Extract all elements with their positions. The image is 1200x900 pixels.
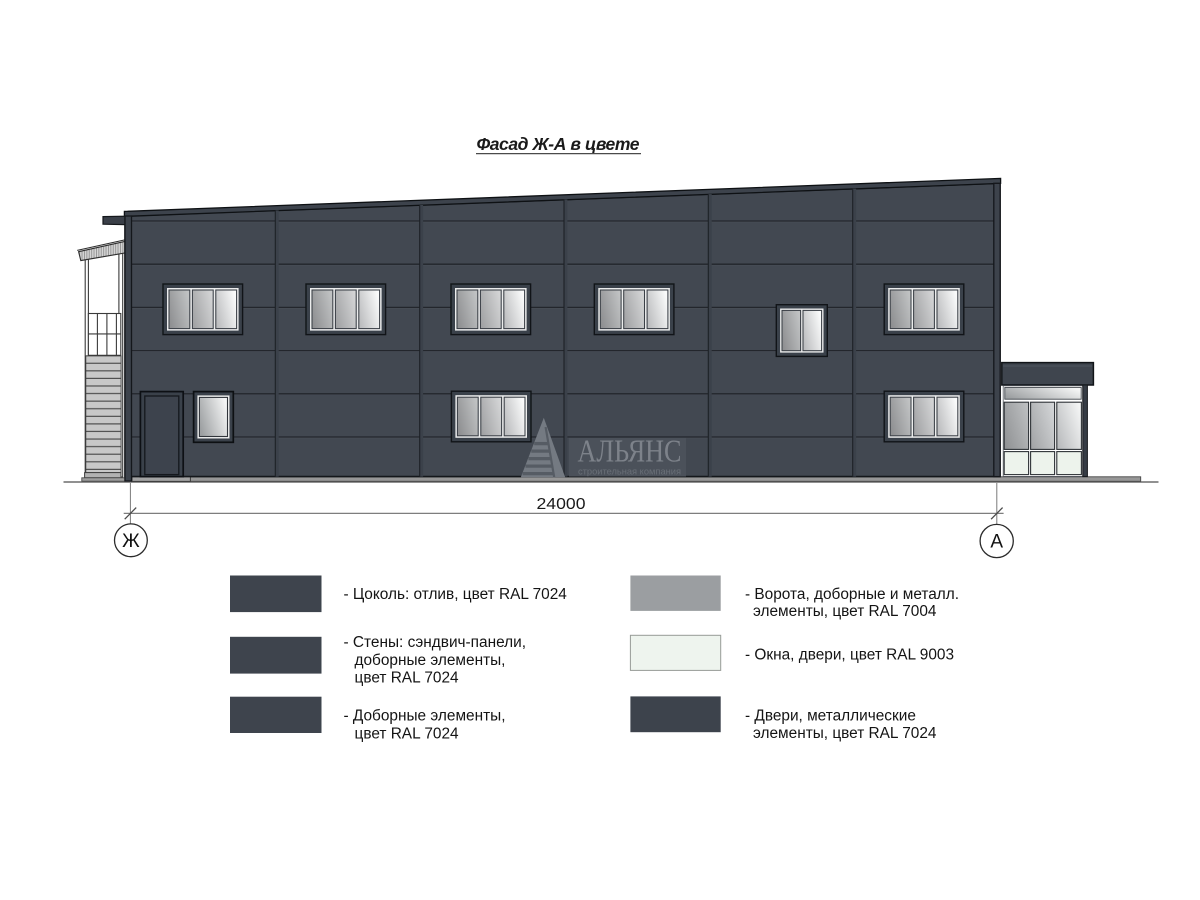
svg-text:АЛЬЯНС: АЛЬЯНС	[578, 434, 682, 469]
svg-text:- Доборные элементы,: - Доборные элементы,	[344, 708, 506, 725]
svg-text:Ж: Ж	[122, 531, 140, 552]
svg-text:доборные элементы,: доборные элементы,	[355, 652, 506, 669]
svg-text:А: А	[990, 532, 1003, 553]
svg-text:цвет RAL 7024: цвет RAL 7024	[355, 725, 460, 742]
svg-text:- Ворота, доборные и металл.: - Ворота, доборные и металл.	[745, 586, 959, 603]
svg-text:- Стены: сэндвич-панели,: - Стены: сэндвич-панели,	[344, 634, 526, 651]
svg-text:Фасад Ж-А в цвете: Фасад Ж-А в цвете	[477, 134, 640, 154]
svg-text:строительная компания: строительная компания	[578, 466, 681, 477]
svg-text:- Окна, двери, цвет RAL 9003: - Окна, двери, цвет RAL 9003	[745, 647, 954, 664]
svg-text:- Цоколь: отлив, цвет RAL 7024: - Цоколь: отлив, цвет RAL 7024	[344, 586, 568, 603]
svg-text:24000: 24000	[537, 496, 586, 513]
svg-text:элементы, цвет RAL 7024: элементы, цвет RAL 7024	[753, 725, 937, 742]
svg-text:- Двери, металлические: - Двери, металлические	[745, 708, 916, 725]
svg-text:элементы, цвет RAL 7004: элементы, цвет RAL 7004	[753, 603, 937, 620]
svg-text:цвет RAL 7024: цвет RAL 7024	[355, 670, 460, 687]
